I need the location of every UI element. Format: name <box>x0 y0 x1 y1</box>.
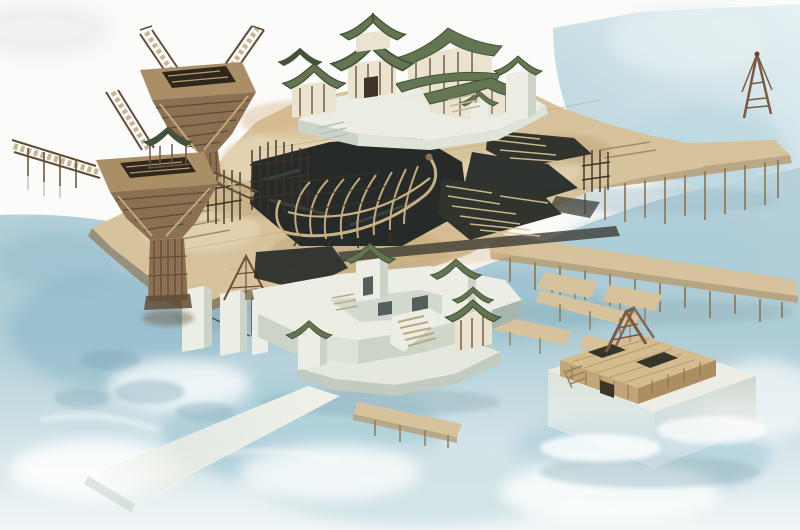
shipyard-illustration <box>0 0 800 530</box>
illustration-stage <box>0 0 800 530</box>
